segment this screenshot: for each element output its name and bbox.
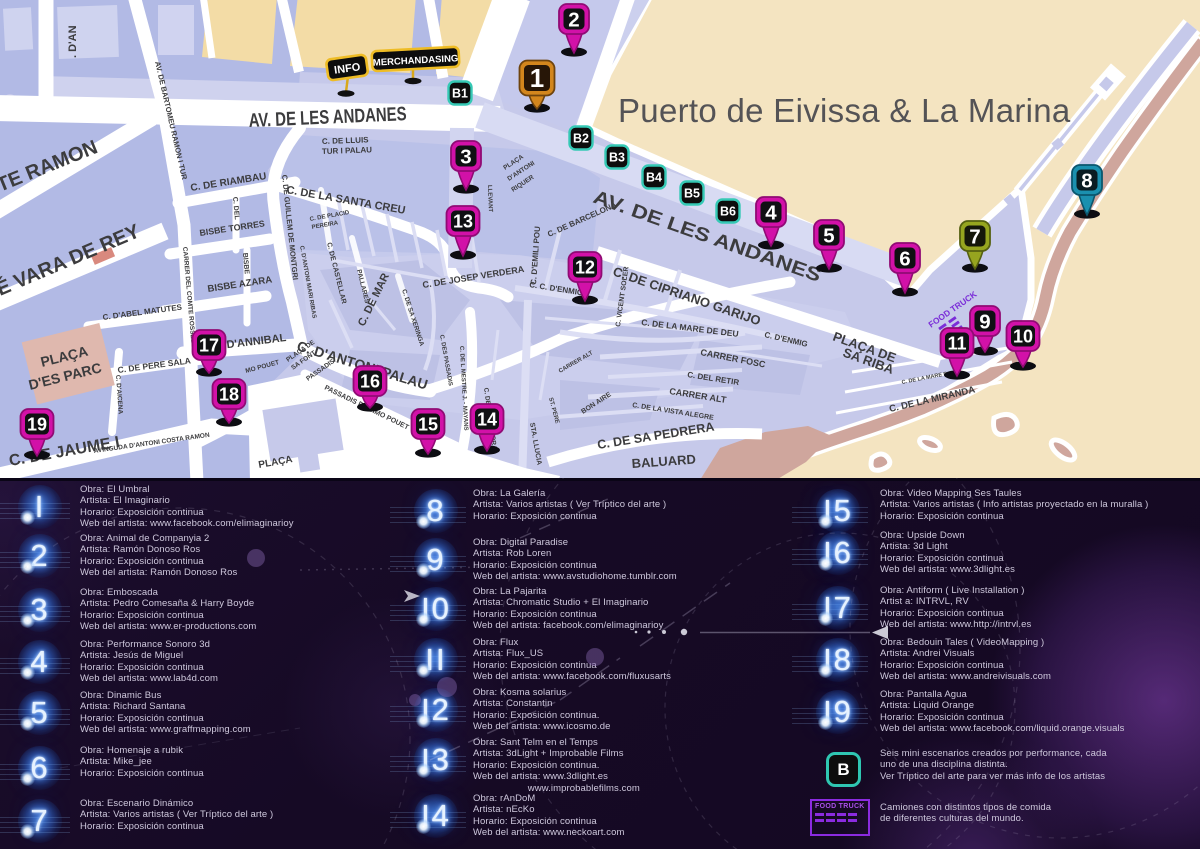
svg-text:B3: B3	[609, 151, 625, 165]
svg-text:B5: B5	[684, 187, 700, 201]
svg-text:B2: B2	[573, 132, 589, 146]
svg-text:12: 12	[575, 257, 595, 277]
svg-text:9: 9	[979, 310, 990, 333]
svg-text:5: 5	[823, 224, 834, 247]
svg-text:15: 15	[418, 414, 438, 434]
svg-text:Puerto de Eivissa & La Marina: Puerto de Eivissa & La Marina	[618, 92, 1071, 129]
svg-text:13: 13	[453, 211, 473, 231]
svg-text:7: 7	[969, 225, 980, 248]
svg-text:1: 1	[530, 63, 544, 93]
svg-text:B4: B4	[646, 171, 662, 185]
svg-text:14: 14	[477, 409, 497, 429]
svg-text:TUR I PALAU: TUR I PALAU	[322, 145, 373, 156]
svg-text:10: 10	[1013, 326, 1033, 346]
svg-text:17: 17	[199, 335, 219, 355]
svg-text:. D'AN: . D'AN	[67, 25, 79, 58]
svg-text:C. DE LLUIS: C. DE LLUIS	[322, 135, 370, 146]
svg-text:4: 4	[765, 201, 777, 224]
svg-text:B1: B1	[452, 87, 468, 101]
svg-text:2: 2	[568, 8, 579, 31]
svg-text:19: 19	[27, 414, 47, 434]
svg-text:6: 6	[899, 247, 910, 270]
svg-text:8: 8	[1081, 169, 1092, 192]
svg-text:LLEVANT: LLEVANT	[486, 185, 493, 213]
svg-text:B6: B6	[720, 205, 736, 219]
svg-text:11: 11	[947, 333, 966, 353]
svg-text:16: 16	[360, 371, 380, 391]
svg-text:3: 3	[460, 145, 471, 168]
svg-text:18: 18	[219, 384, 239, 404]
